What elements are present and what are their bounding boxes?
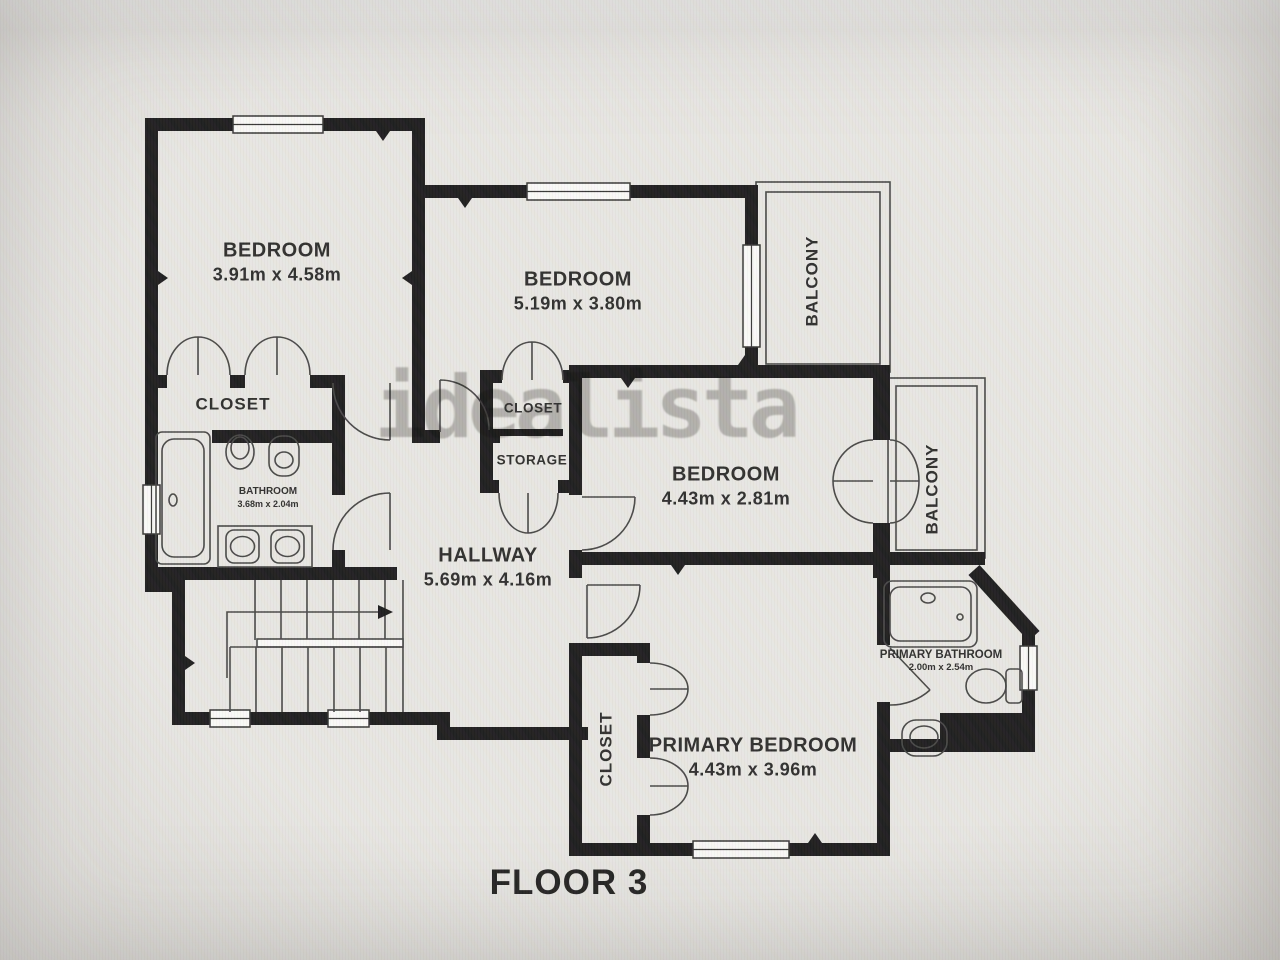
stairs <box>227 580 403 712</box>
floor-plan-drawing <box>0 0 1280 960</box>
room-label-closet-mid: CLOSET <box>504 401 562 418</box>
room-label-primary-bedroom: PRIMARY BEDROOM 4.43m x 3.96m <box>649 733 858 781</box>
primary-bathtub <box>884 581 977 647</box>
vanity <box>218 526 312 567</box>
idealista-watermark: idealista <box>325 348 845 468</box>
room-label-storage: STORAGE <box>497 453 568 470</box>
room-label-balcony-right: BALCONY <box>921 443 942 534</box>
room-label-bedroom3: BEDROOM 4.43m x 2.81m <box>662 462 791 510</box>
room-label-hallway: HALLWAY 5.69m x 4.16m <box>424 543 553 591</box>
room-label-closet-primary: CLOSET <box>595 712 616 787</box>
bathtub <box>156 432 210 564</box>
room-label-primary-bathroom: PRIMARY BATHROOM 2.00m x 2.54m <box>880 648 1002 674</box>
floor-plan-photo: idealista BEDROOM 3.91m x 4.58m BEDROOM … <box>0 0 1280 960</box>
room-label-balcony-top: BALCONY <box>801 235 822 326</box>
room-label-closet-bedroom1: CLOSET <box>196 393 271 414</box>
floor-label: FLOOR 3 <box>490 863 649 903</box>
room-label-bedroom2: BEDROOM 5.19m x 3.80m <box>514 267 643 315</box>
room-label-bedroom1: BEDROOM 3.91m x 4.58m <box>213 238 342 286</box>
room-label-bathroom: BATHROOM 3.68m x 2.04m <box>237 486 298 510</box>
